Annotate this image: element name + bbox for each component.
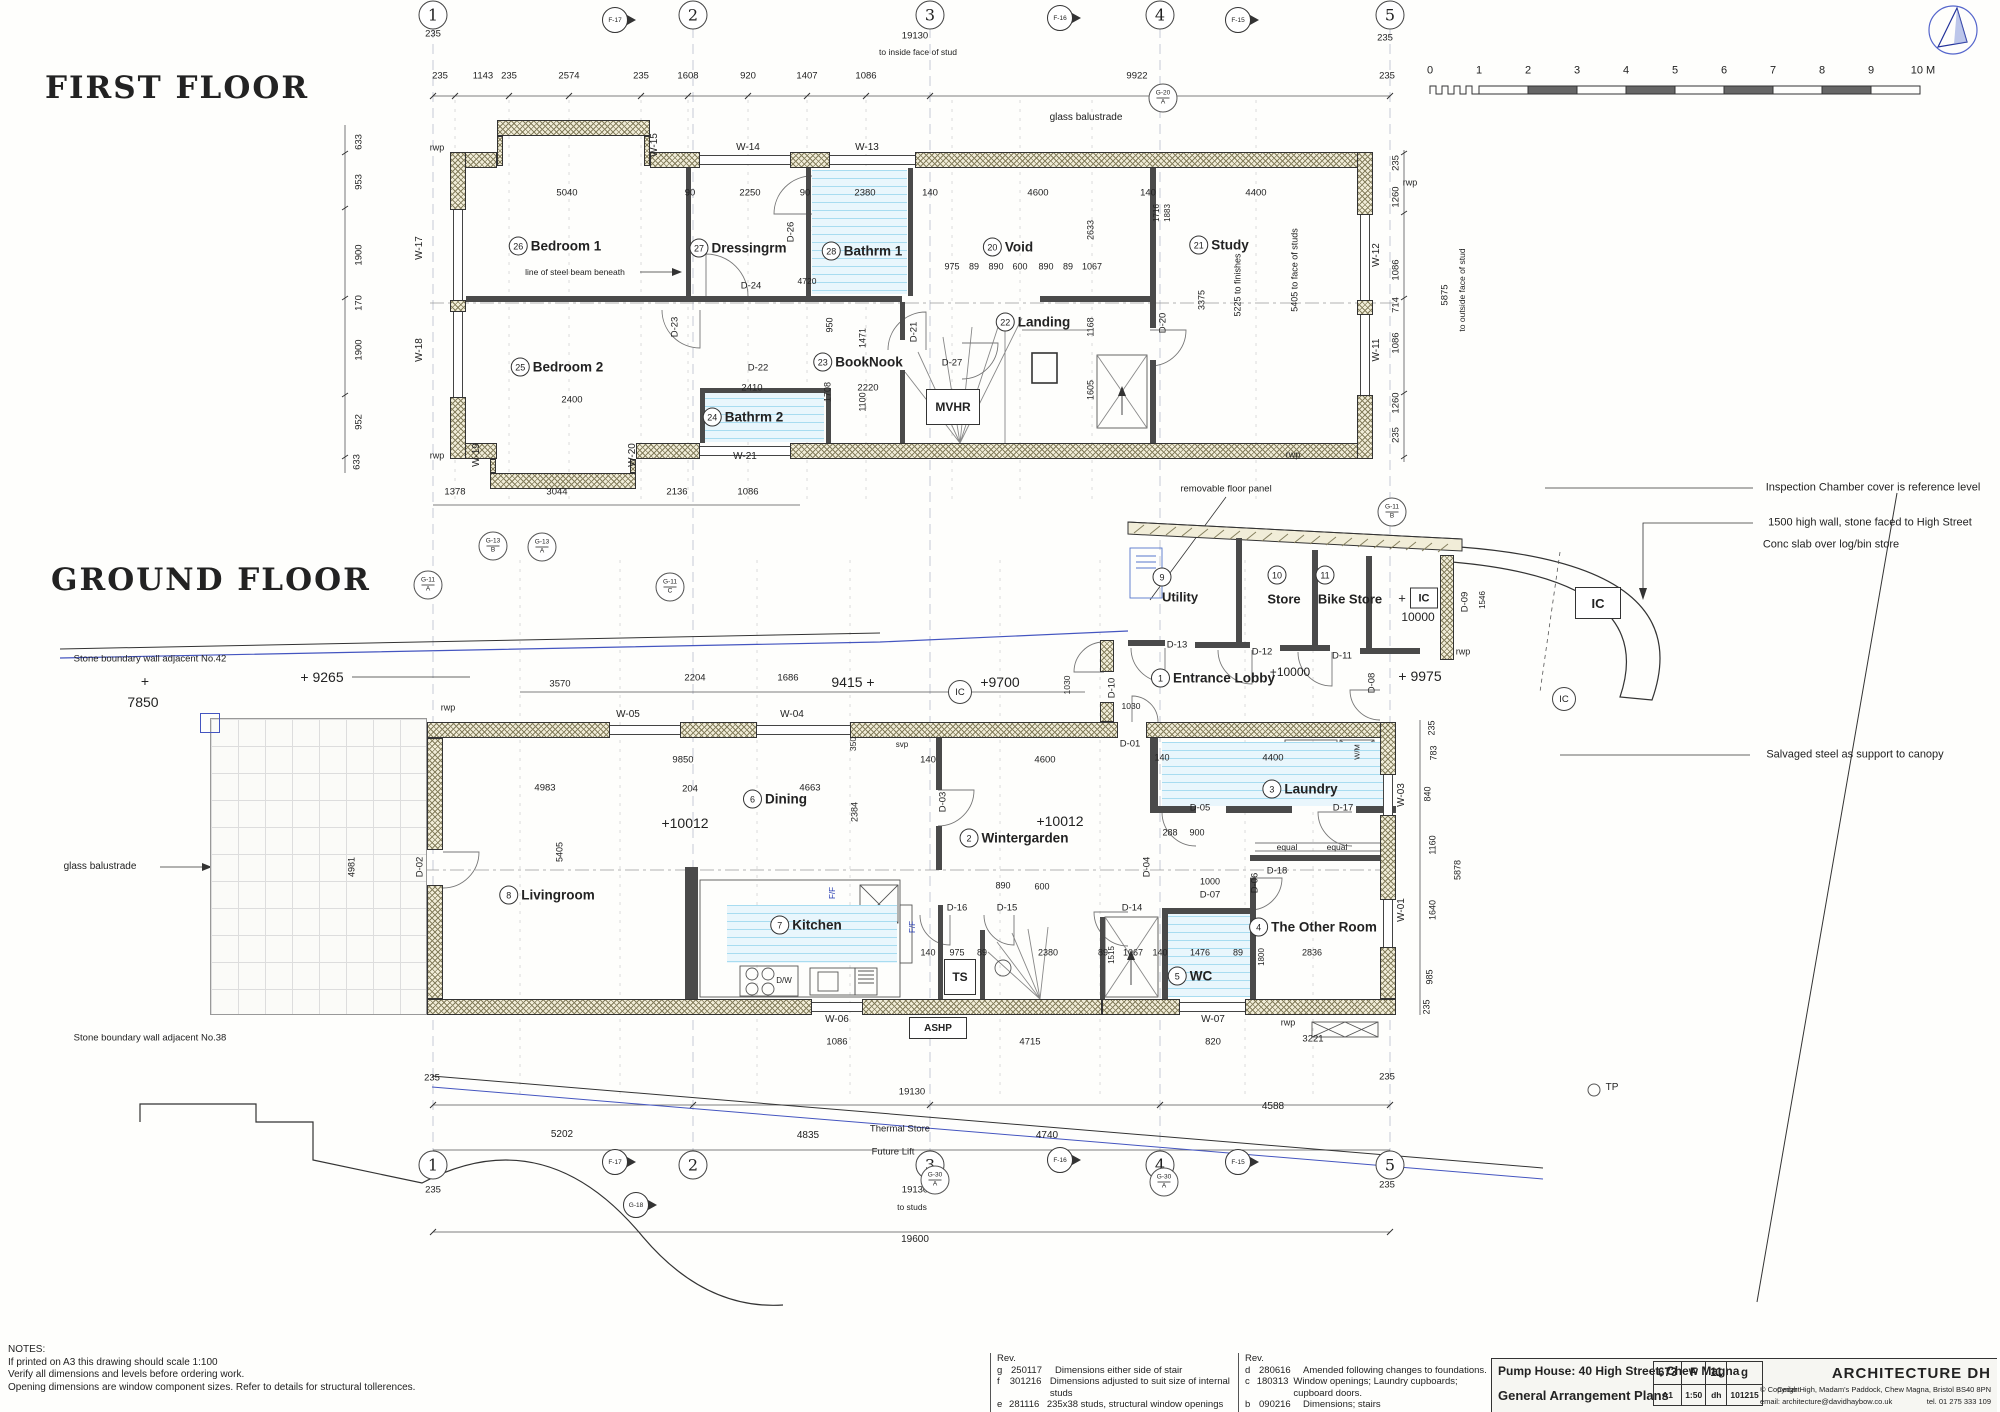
annotation-text: D-08 [1367,673,1377,694]
annotation-text: TP [1606,1083,1619,1093]
wall [427,738,443,850]
wall [1440,555,1454,660]
annotation-text: 9850 [672,755,693,765]
equipment-box: MVHR [926,389,980,425]
annotation-text: 4835 [797,1131,819,1141]
annotation-text: 1900 [354,339,364,360]
bay-wall [497,120,650,136]
section-marker: F-16 [1047,1147,1073,1173]
revision-row: d280616Amended following changes to foun… [1245,1365,1490,1377]
annotation-text: 350 [849,737,858,751]
room-label: 24 Bathrm 2 [703,408,784,427]
terrace-post [200,713,220,733]
annotation-text: 235 [501,71,517,81]
annotation-text: to studs [897,1203,927,1212]
internal-wall [1250,878,1256,999]
window-w03 [1383,775,1393,815]
room-name: Bathrm 2 [725,410,784,425]
annotation-text: 1067 [1123,949,1143,958]
date: 101215 [1727,1385,1761,1405]
note-line: If printed on A3 this drawing should sca… [8,1357,415,1370]
annotation-text: 235 [633,71,649,81]
annotation-text: 1605 [1087,380,1096,400]
internal-wall [900,370,905,443]
ic-marker: IC [948,680,972,704]
annotation-text: 235 [432,71,448,81]
wall [790,152,830,168]
annotation-text: 5405 [556,842,565,862]
annotation-text: rwp [1403,179,1418,188]
annotation-text: 9415 + [831,675,874,689]
annotation-text: D-24 [741,281,762,291]
annotation-text: D-02 [415,857,425,878]
annotation-text: 89 [1233,949,1243,958]
annotation-text: 1900 [354,244,364,265]
internal-wall [900,302,905,340]
wall [636,443,700,459]
room-number: 22 [996,313,1015,332]
annotation-text: 140 [1154,754,1169,763]
annotation-text: 975 [949,949,964,958]
rev-suffix: g [1727,1362,1761,1385]
wall [427,885,443,999]
scalebar-tick-label: 2 [1525,66,1531,77]
annotation-text: 4663 [799,783,820,793]
annotation-text: 900 [1189,829,1204,838]
revision-row: b090216Dimensions; stairs [1245,1399,1490,1411]
annotation-text: 2574 [558,71,579,81]
annotation-text: 235 [1379,1072,1395,1082]
annotation-text: 840 [1424,786,1433,801]
annotation-text: svp [896,741,908,749]
room-name: Laundry [1284,782,1337,797]
room-name: WC [1190,969,1213,984]
annotation-text: 1030 [1063,676,1072,695]
room-name: Livingroom [521,888,595,903]
annotation-text: 2633 [1087,220,1096,240]
room-number: 8 [499,886,518,905]
section-marker: G-18 [623,1192,649,1218]
grid-bubble: 1 [419,1,448,30]
detail-ref-bubble: G-13A [528,533,557,562]
annotation-text: 3044 [546,487,567,497]
north-arrow-icon [1929,6,1977,54]
annotation-text: W-18 [415,338,425,362]
annotation-text: D-05 [1190,803,1211,813]
room-number: 11 [1316,566,1335,585]
window-w07 [1180,1002,1245,1012]
room-name: Dressingrm [711,241,786,256]
internal-wall [685,867,698,999]
equipment-box: TS [944,959,976,995]
wall [497,136,503,166]
annotation-text: 235 [425,29,441,39]
annotation-text: D-07 [1200,890,1221,900]
grid-bubble: 2 [679,1,708,30]
grid-bubble: 5 [1376,1151,1405,1180]
internal-wall [980,930,985,999]
room-label: 6 Dining [743,790,807,809]
annotation-text: 204 [682,784,698,794]
window-w06 [812,1002,862,1012]
annotation-text: 89 [1063,263,1073,272]
annotation-text: 890 [995,882,1010,891]
annotation-text: W-12 [1372,243,1382,267]
annotation-text: 140 [1152,949,1167,958]
room-number: 9 [1153,568,1172,587]
drawn-by: dh [1706,1385,1726,1405]
annotation-text: W-14 [736,143,760,153]
equipment-box: IC [1410,588,1438,609]
annotation-text: W-20 [628,443,638,467]
annotation-text: D-27 [942,358,963,368]
annotation-text: 1168 [1087,317,1096,336]
annotation-text: D-09 [1460,592,1470,613]
room-label: 2 Wintergarden [960,829,1069,848]
room-name: Bathrm 1 [844,244,903,259]
annotation-text: 4400 [1262,753,1283,763]
revision-header: Rev. [1245,1353,1490,1365]
annotation-text: 235 [1428,720,1437,735]
grid-bubble: 1 [419,1151,448,1180]
annotation-text: rwp [1286,451,1301,460]
internal-wall [1162,908,1250,914]
scale: 1:50 [1682,1385,1705,1405]
annotation-text: 1686 [777,673,798,683]
annotation-text: 2136 [666,487,687,497]
room-name: Landing [1018,315,1071,330]
room-name: Bedroom 1 [531,239,602,254]
annotation-text: W-01 [1397,898,1407,922]
wall [427,722,610,738]
internal-wall [908,168,913,296]
annotation-text: D-10 [1107,678,1117,699]
section-marker: F-17 [602,1149,628,1175]
annotation-text: equal [1277,843,1298,852]
wall [1357,152,1373,215]
wall [862,999,1102,1015]
wall [1102,999,1180,1015]
annotation-text: 5225 to finishes [1234,253,1243,316]
annotation-text: Salvaged steel as support to canopy [1766,750,1943,761]
internal-wall [1195,642,1250,648]
section-marker: F-15 [1225,7,1251,33]
annotation-text: 235 [1391,427,1401,443]
annotation-text: 1160 [1429,835,1438,854]
wall [427,999,812,1015]
sheet-size: A1 [1654,1385,1681,1405]
annotation-text: 1500 high wall, stone faced to High Stre… [1768,518,1972,529]
annotation-text: 2204 [684,673,705,683]
annotation-text: 10000 [1401,611,1434,623]
annotation-text: D-20 [1158,313,1168,334]
annotation-text: 235 [1377,33,1393,43]
window-w17 [453,210,463,300]
annotation-text: W-07 [1201,1015,1225,1025]
annotation-text: D-14 [1122,903,1143,913]
annotation-text: glass balustrade [1050,113,1123,123]
wall [450,397,466,459]
annotation-text: 1708 [824,382,833,402]
wall [1357,300,1373,315]
notes-title: NOTES: [8,1344,415,1357]
annotation-text: W-21 [733,452,757,462]
annotation-text: Bike Store [1318,593,1382,606]
annotation-text: Conc slab over log/bin store [1763,540,1899,551]
sheet-title: General Arrangement Plans [1498,1388,1669,1403]
annotation-text: rwp [1456,648,1471,657]
room-label: 7 Kitchen [770,916,842,935]
annotation-text: 1407 [796,71,817,81]
annotation-text: 3375 [1198,290,1207,310]
annotation-text: 920 [740,71,756,81]
annotation-text: W-13 [855,143,879,153]
internal-wall [1250,855,1380,861]
annotation-text: removable floor panel [1180,484,1271,494]
room-number: 23 [813,353,832,372]
annotation-text: 19130 [902,31,928,41]
job-number: 673 [1654,1362,1681,1385]
room-number: 6 [743,790,762,809]
annotation-text: + [1398,592,1406,605]
annotation-text: 2400 [561,395,582,405]
annotation-text: 975 [944,263,959,272]
room-number: 27 [689,239,708,258]
wall [1357,395,1373,459]
annotation-text: D-17 [1333,803,1354,813]
room-label: 3 Laundry [1262,780,1337,799]
room-label: 8 Livingroom [499,886,595,905]
revision-row: e281116235x38 studs, structural window o… [997,1399,1237,1412]
scalebar-tick-label: 3 [1574,66,1580,77]
wall [450,152,466,210]
wall [850,722,1118,738]
annotation-text: 140 [1140,188,1156,198]
room-name: Kitchen [792,918,842,933]
annotation-text: 4600 [1027,188,1048,198]
annotation-text: 1260 [1391,186,1401,207]
detail-ref-bubble: G-30A [921,1166,950,1195]
annotation-text: 1086 [1391,259,1401,280]
annotation-text: Thermal Store [870,1124,930,1134]
annotation-text: 1086 [1391,332,1401,353]
scalebar-tick-label: 8 [1819,66,1825,77]
annotation-text: W-17 [415,236,425,260]
annotation-text: 90 [800,188,811,198]
window-w11 [1360,315,1370,395]
annotation-text: Stone boundary wall adjacent No.42 [74,654,227,664]
annotation-text: 633 [352,454,362,470]
equipment-box: IC [1575,587,1621,619]
internal-wall [938,905,943,999]
annotation-text: rwp [430,144,445,153]
annotation-text: 5875 [1440,284,1450,305]
room-number: 26 [509,237,528,256]
annotation-text: 1378 [444,487,465,497]
internal-wall [936,738,942,790]
revision-table-left: Rev. g250117Dimensions either side of st… [990,1353,1237,1412]
window-w14 [700,155,790,165]
annotation-text: D-11 [1332,651,1352,661]
room-number: 24 [703,408,722,427]
room-label: 28 Bathrm 1 [822,242,903,261]
room-number: 25 [511,358,530,377]
annotation-text: 1100 [859,392,868,411]
annotation-text: 1143 [473,71,493,81]
annotation-text: rwp [1281,1019,1296,1028]
annotation-text: to inside face of stud [879,48,957,57]
grid-bubble: 5 [1376,1,1405,30]
annotation-text: D-01 [1120,739,1141,749]
annotation-text: 288 [1162,829,1177,838]
annotation-text: 1260 [1391,392,1401,413]
firm-address: Cedar High, Madam's Paddock, Chew Magna,… [1777,1385,1991,1394]
annotation-text: 170 [354,295,364,311]
detail-ref-bubble: G-11C [656,573,685,602]
annotation-text: 4588 [1262,1102,1284,1112]
annotation-text: 89 [977,949,987,958]
room-number: 28 [822,242,841,261]
annotation-text: 4981 [348,857,357,877]
internal-wall [1226,806,1292,813]
annotation-text: D-04 [1142,857,1152,878]
wall [1380,947,1396,999]
annotation-text: D-06 [1250,873,1260,894]
annotation-text: 140 [922,188,938,198]
window-w05 [610,725,680,735]
annotation-text: 1640 [1429,900,1438,920]
wall [915,152,1373,168]
annotation-text: 5040 [556,188,577,198]
annotation-text: 1800 [1258,948,1266,966]
revision-header: Rev. [997,1353,1237,1365]
detail-ref-bubble: G-11B [1378,498,1407,527]
annotation-text: 1000 [1200,878,1220,887]
annotation-text: W-03 [1397,783,1407,807]
internal-wall [466,296,902,302]
annotation-text: 90 [685,188,696,198]
room-label: 25 Bedroom 2 [511,358,604,377]
annotation-text: 890 [1038,263,1053,272]
annotation-text: Future Lift [872,1147,915,1157]
annotation-text: glass balustrade [64,862,137,872]
equipment-box: ASHP [909,1017,967,1039]
annotation-text: 7850 [127,695,158,709]
annotation-text: 1716 [1153,204,1161,222]
revision-table-right: Rev. d280616Amended following changes to… [1238,1353,1490,1412]
room-number: 21 [1189,236,1208,255]
annotation-text: to outside face of stud [1458,248,1467,331]
room-name: The Other Room [1271,920,1377,935]
annotation-text: rwp [430,452,445,461]
annotation-text: 1471 [859,328,868,348]
room-number: 3 [1262,780,1281,799]
scalebar-tick-label: 6 [1721,66,1727,77]
annotation-text: D/W [776,977,792,985]
annotation-text: 5202 [551,1130,573,1140]
annotation-text: 2836 [1302,949,1322,958]
annotation-text: 5405 to face of studs [1291,228,1300,312]
revision-row: f301216Dimensions adjusted to suit size … [997,1376,1237,1399]
wall [450,300,466,312]
scalebar-tick-label: 9 [1868,66,1874,77]
wall [1146,722,1396,738]
revision: F [1682,1362,1705,1385]
drawing-number: 11 [1706,1362,1726,1385]
annotation-text: 1067 [1082,263,1102,272]
annotation-text: rwp [441,704,456,713]
annotation-text: 235 [1379,1180,1395,1190]
room-label: 26 Bedroom 1 [509,237,602,256]
annotation-text: +10012 [661,816,708,830]
note-line: Opening dimensions are window component … [8,1382,415,1395]
annotation-text: 5878 [1454,860,1463,880]
annotation-text: D-26 [786,222,796,243]
annotation-text: 2380 [1038,949,1058,958]
internal-wall [1150,738,1158,806]
firm-name: ARCHITECTURE DH [1832,1365,1991,1382]
room-label: 5 WC [1168,967,1213,986]
annotation-text: 140 [920,949,935,958]
annotation-text: 1608 [677,71,698,81]
detail-ref-bubble: G-11A [414,571,443,600]
scalebar-tick-label: 10 M [1911,66,1935,77]
annotation-text: 4600 [1034,755,1055,765]
annotation-text: 820 [1205,1037,1221,1047]
annotation-text: 235 [425,1185,441,1195]
annotation-text: D-23 [670,317,680,338]
internal-wall [700,388,830,393]
annotation-text: 3221 [1302,1034,1323,1044]
room-label: 22 Landing [996,313,1071,332]
annotation-text: W/M [1353,744,1361,759]
window-w13 [830,155,915,165]
annotation-text: 9922 [1126,71,1147,81]
room-name: Entrance Lobby [1173,671,1275,686]
window-w01 [1383,900,1393,947]
room-number: 7 [770,916,789,935]
annotation-text: 19600 [901,1235,929,1245]
annotation-text: 235 [424,1073,440,1083]
annotation-text: 2220 [857,383,878,393]
room-label: 20 Void [983,238,1033,257]
internal-wall [1280,645,1330,651]
drawing-sheet: FIRST FLOOR GROUND FLOOR 12345 12345 F-1… [0,0,2000,1412]
email: email: architecture@davidhaybow.co.uk [1760,1397,1892,1406]
annotation-text: 235 [1423,999,1432,1014]
annotation-text: 1883 [1164,204,1172,222]
internal-wall [1100,917,1105,999]
room-label: 23 BookNook [813,353,903,372]
ground-floor-title: GROUND FLOOR [51,562,371,598]
grid-bubble: 2 [679,1151,708,1180]
annotation-text: 1086 [826,1037,847,1047]
annotation-text: 2410 [741,383,762,393]
annotation-text: 950 [826,317,835,332]
revision-row: g250117Dimensions either side of stair [997,1365,1237,1377]
wall [1380,722,1396,775]
room-name: Study [1211,238,1249,253]
room-label: 27 Dressingrm [689,239,786,258]
annotation-text: D-22 [748,363,769,373]
annotation-text: D-15 [997,903,1018,913]
wall [680,722,757,738]
detail-ref-bubble: G-30A [1150,1168,1179,1197]
annotation-text: 19130 [899,1087,925,1097]
annotation-text: 4740 [1036,1131,1058,1141]
room-label: 21 Study [1189,236,1249,255]
annotation-text: 1030 [1122,702,1141,711]
